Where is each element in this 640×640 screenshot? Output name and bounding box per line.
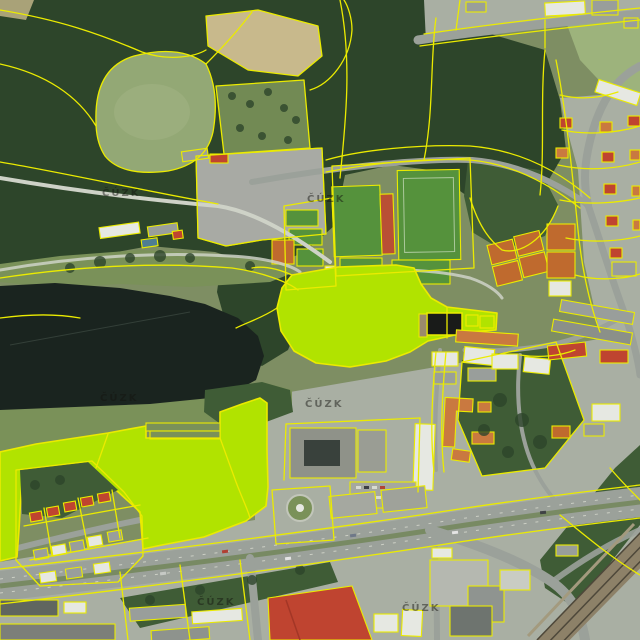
map-viewport[interactable]: ČÚZK ČÚZK ČÚZK ČÚZK ČÚZK ČÚZK [0, 0, 640, 640]
cuzk-watermark: ČÚZK [307, 192, 345, 205]
cuzk-watermark: ČÚZK [100, 391, 138, 404]
meadow-light-patch [114, 84, 190, 140]
cuzk-watermark: ČÚZK [197, 595, 235, 608]
park-fountain [287, 495, 313, 521]
cuzk-watermark: ČÚZK [305, 397, 343, 410]
running-track-strip [380, 194, 395, 254]
court-green-3 [297, 249, 323, 266]
football-pitch-main [397, 169, 461, 260]
cadastral-aerial-map[interactable]: ČÚZK ČÚZK ČÚZK ČÚZK ČÚZK ČÚZK [0, 0, 640, 640]
black-building-annex [419, 314, 427, 337]
court-green-1 [286, 210, 318, 226]
court-clay-small [272, 240, 294, 264]
shore-strip-parcel-1 [146, 423, 220, 431]
court-clay-east-1 [547, 224, 575, 250]
cuzk-watermark: ČÚZK [402, 601, 440, 614]
cuzk-watermark: ČÚZK [102, 186, 140, 199]
court-clay-east-2 [547, 252, 575, 278]
court-white [549, 281, 571, 296]
